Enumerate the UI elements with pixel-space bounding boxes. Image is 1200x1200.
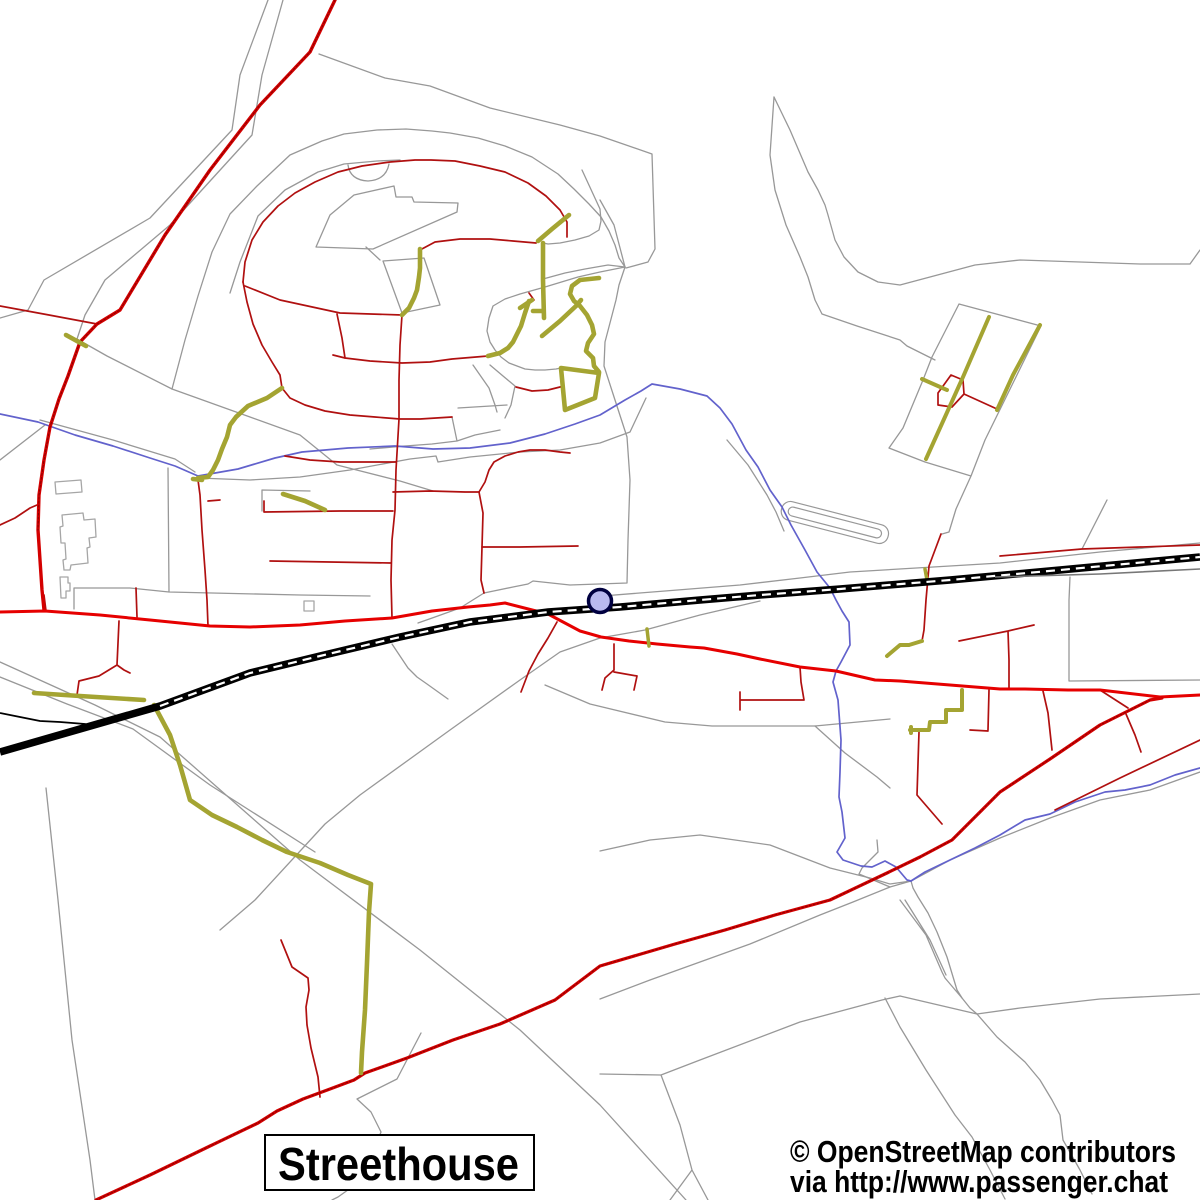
svg-text:Streethouse: Streethouse <box>278 1138 519 1190</box>
svg-text:via http://www.passenger.chat: via http://www.passenger.chat <box>790 1164 1168 1199</box>
